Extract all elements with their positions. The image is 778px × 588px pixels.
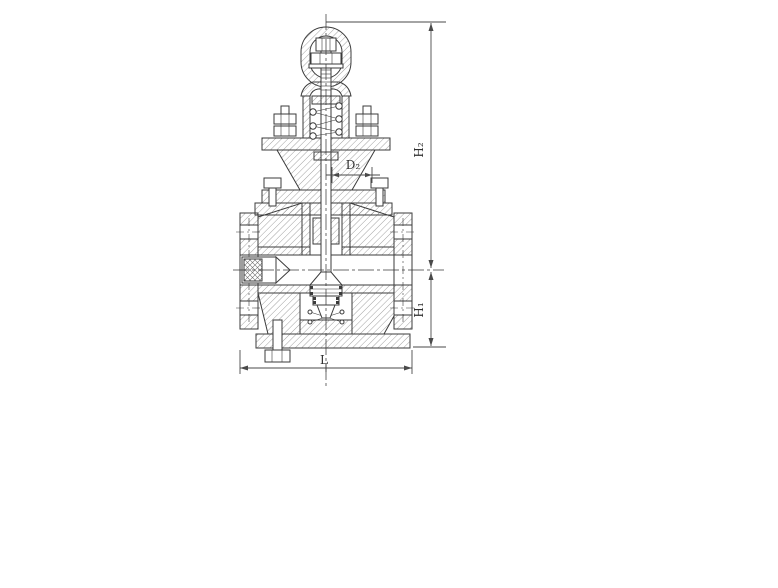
dim-label-h2: H₂ bbox=[412, 142, 426, 157]
body-web-lower-right bbox=[352, 293, 394, 334]
dim-label-l: L bbox=[320, 353, 328, 367]
bonnet-flange-bolt-right bbox=[356, 106, 378, 136]
dim-label-h1: H₁ bbox=[412, 302, 426, 317]
drawing-canvas: H₂ H₁ L D₂ bbox=[0, 0, 778, 588]
valve-technical-drawing: H₂ H₁ L D₂ bbox=[0, 0, 778, 588]
dimension-h1: H₁ bbox=[412, 272, 446, 347]
dim-label-d2: D₂ bbox=[346, 158, 361, 172]
bonnet-flange-bolt-left bbox=[274, 106, 296, 136]
